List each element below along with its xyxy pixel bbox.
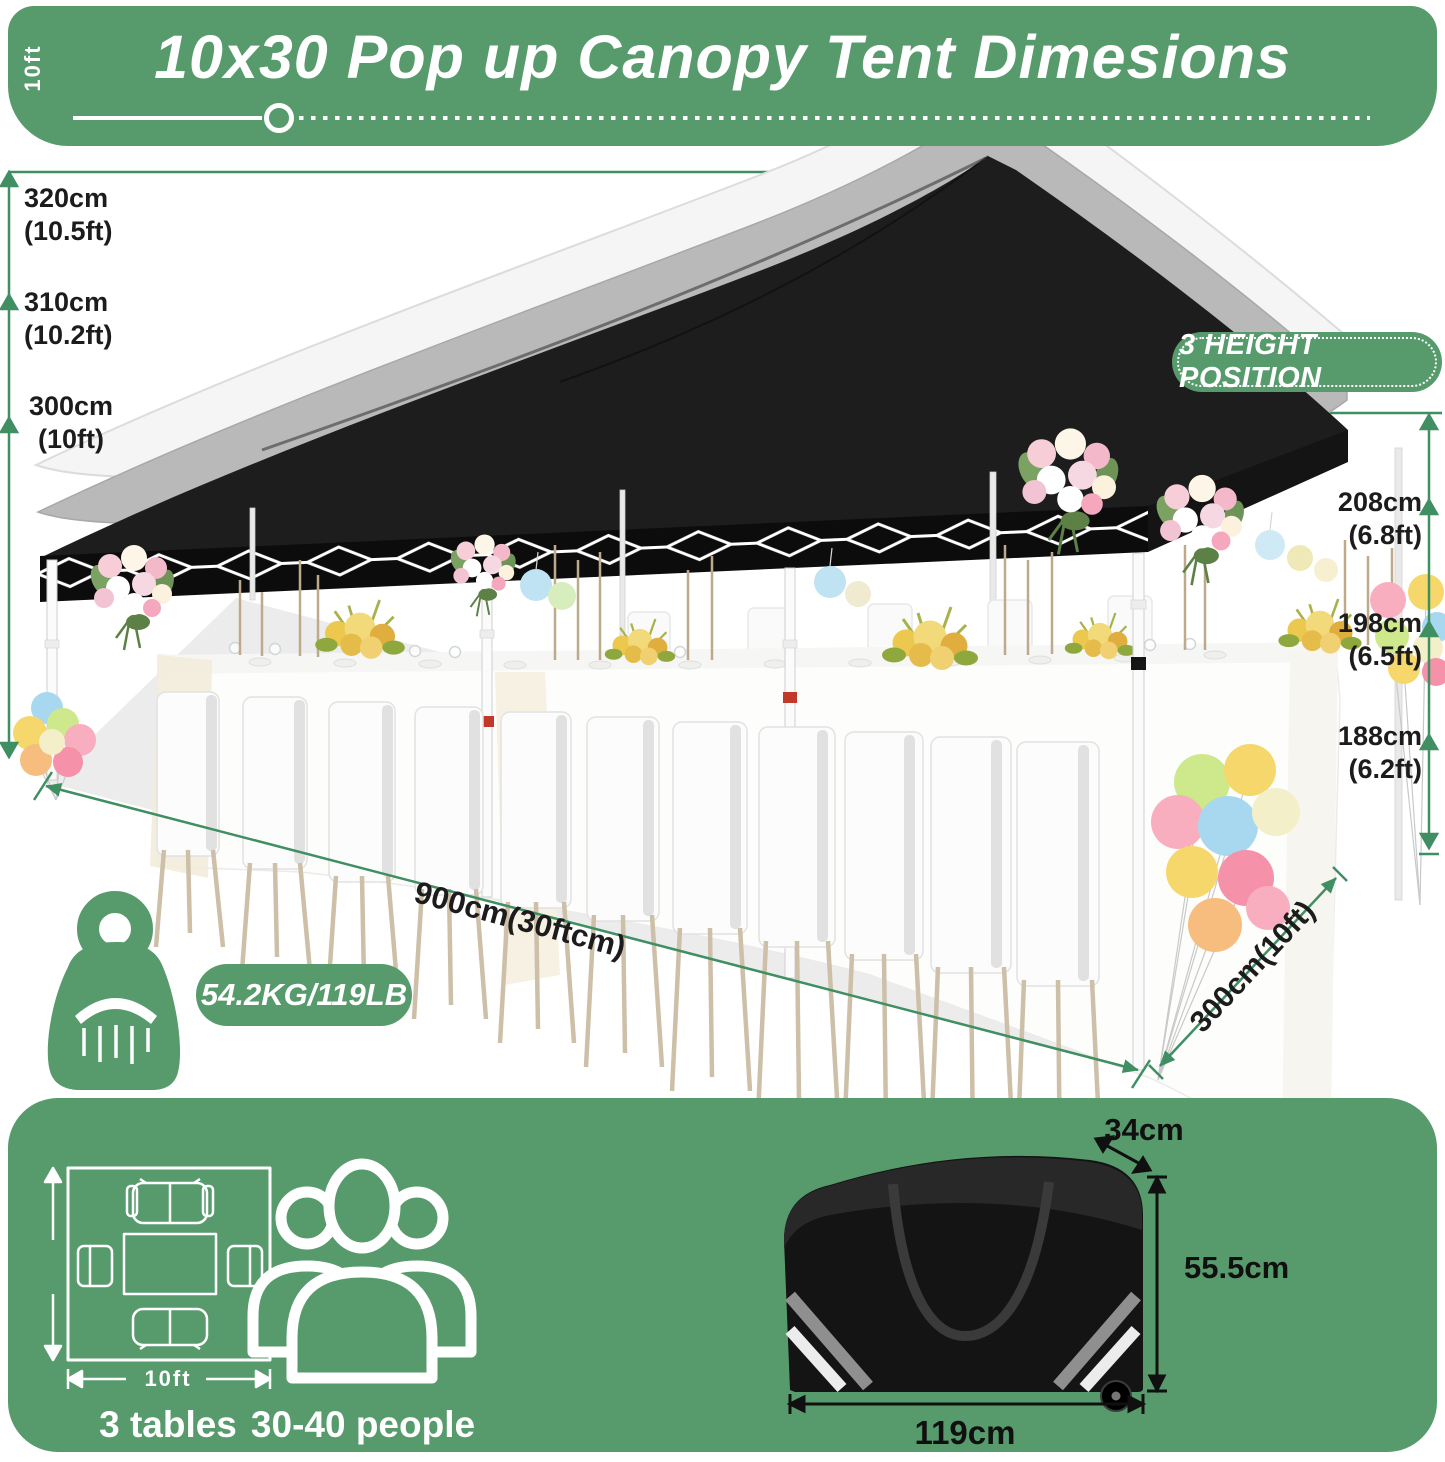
spec-panel: 10ft 10ft 3 tables 30-40 people 34cm 55.…	[8, 1098, 1437, 1452]
table-layout-diagram	[45, 1168, 270, 1389]
side-height-label-188: 188cm (6.2ft)	[1330, 720, 1422, 786]
storage-bag-icon	[784, 1156, 1143, 1411]
peak-height-label-320: 320cm (10.5ft)	[24, 182, 113, 248]
peak-height-label-310: 310cm (10.2ft)	[24, 286, 113, 352]
tent-illustration	[0, 146, 1445, 1098]
height-position-badge-label: 3 HEIGHT POSITION	[1177, 337, 1437, 387]
bag-height-label: 55.5cm	[1184, 1250, 1324, 1286]
diagram-width-label: 10ft	[118, 1366, 218, 1392]
side-height-label-208: 208cm (6.8ft)	[1330, 486, 1422, 552]
bag-width-label: 119cm	[895, 1414, 1035, 1452]
chairs	[156, 692, 1102, 1098]
side-height-label-198: 198cm (6.5ft)	[1330, 607, 1422, 673]
canopy-dimensions-infographic: 10x30 Pop up Canopy Tent Dimesions	[0, 0, 1445, 1462]
weight-pill: 54.2KG/119LB	[196, 964, 412, 1026]
peak-height-label-300: 300cm (10ft)	[24, 390, 118, 456]
diagram-height-label: 10ft	[20, 38, 46, 98]
people-caption: 30-40 people	[213, 1404, 513, 1446]
header-divider	[8, 94, 1437, 140]
header-banner: 10x30 Pop up Canopy Tent Dimesions	[8, 6, 1437, 146]
page-title: 10x30 Pop up Canopy Tent Dimesions	[8, 22, 1437, 92]
height-position-badge: 3 HEIGHT POSITION	[1172, 332, 1442, 392]
bag-depth-label: 34cm	[1084, 1112, 1204, 1148]
pole-clip	[783, 692, 797, 703]
people-icon	[253, 1164, 471, 1378]
weight-icon	[48, 902, 180, 1090]
pole-clip	[1131, 657, 1146, 670]
